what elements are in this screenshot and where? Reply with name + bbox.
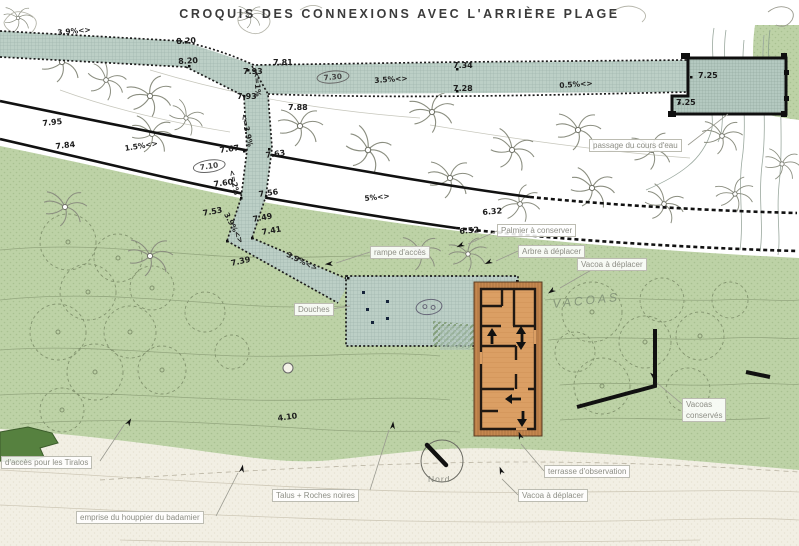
building-plan — [474, 282, 542, 436]
small-circle-marker — [283, 363, 293, 373]
page-title: Croquis des connexions avec l'arrière pl… — [0, 7, 799, 21]
site-plan: Croquis des connexions avec l'arrière pl… — [0, 0, 799, 546]
crossing-strip — [433, 321, 479, 350]
plan-drawing — [0, 0, 799, 546]
